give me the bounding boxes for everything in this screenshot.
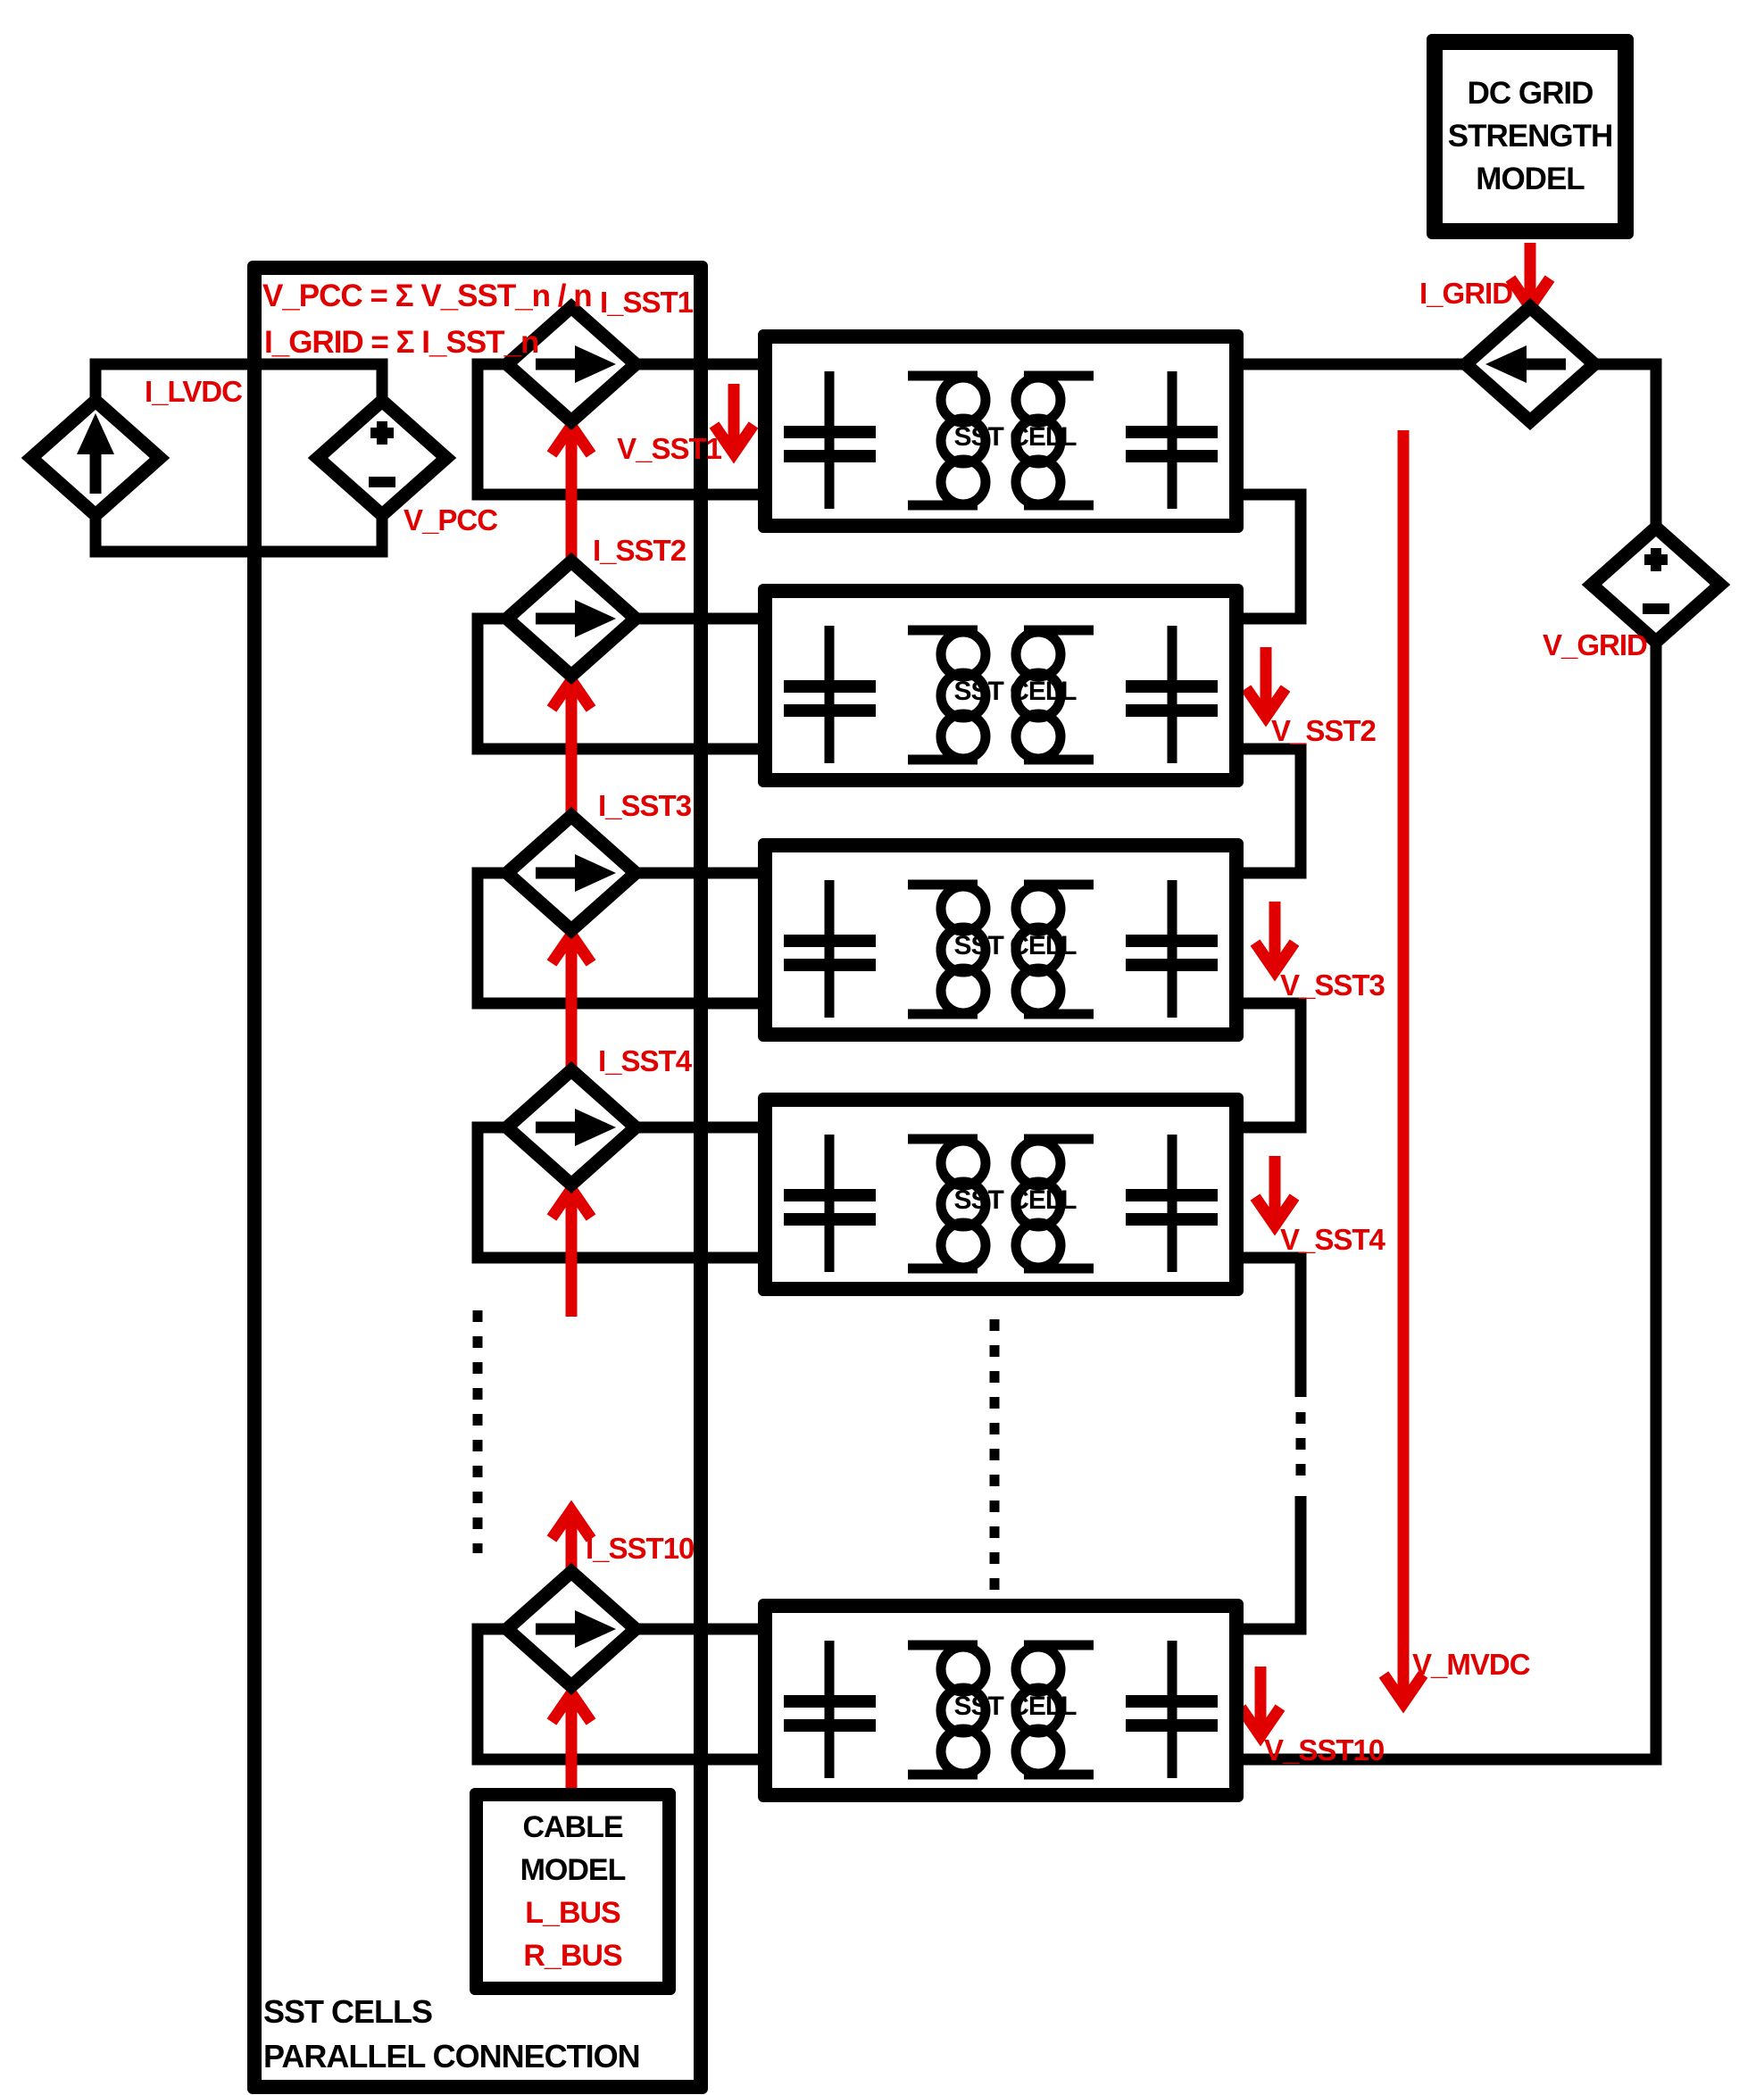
i-grid-source-icon xyxy=(1466,307,1594,421)
dc-grid-model-line1: DC GRID xyxy=(1468,72,1593,115)
formula-v-pcc: V_PCC = Σ V_SST_n / n xyxy=(262,280,592,312)
v-grid-source-icon xyxy=(1592,528,1720,642)
cable-model-line2: MODEL xyxy=(520,1849,626,1891)
v-sst4-label: V_SST4 xyxy=(1280,1225,1385,1254)
i-sst1-label: I_SST1 xyxy=(600,287,693,317)
sst-cell-2-label: SST CELL xyxy=(938,677,1092,707)
cell-internal-components xyxy=(784,371,1218,1778)
i-sst3-label: I_SST3 xyxy=(598,791,691,820)
outer-box-title-line2: PARALLEL CONNECTION xyxy=(263,2041,640,2073)
output-series-chain xyxy=(1244,495,1301,1629)
v-sst2-label: V_SST2 xyxy=(1271,716,1376,745)
i-sst10-label: I_SST10 xyxy=(586,1534,694,1563)
v-sst10-label: V_SST10 xyxy=(1264,1735,1384,1765)
sst-cell-3-label: SST CELL xyxy=(938,931,1092,961)
sst-cell-1-box: SST CELL xyxy=(758,329,1244,533)
i-lvdc-source-icon xyxy=(31,401,160,515)
sst-cell-1-label: SST CELL xyxy=(938,422,1092,453)
i-sst2-label: I_SST2 xyxy=(593,536,686,565)
formula-i-grid: I_GRID = Σ I_SST_n xyxy=(264,327,538,358)
v-sst1-label: V_SST1 xyxy=(612,434,721,463)
cable-model-box: CABLE MODEL L_BUS R_BUS xyxy=(470,1788,676,1995)
sst-cell-2-box: SST CELL xyxy=(758,584,1244,787)
v-pcc-label: V_PCC xyxy=(404,505,497,535)
sst-cell-4-label: SST CELL xyxy=(938,1185,1092,1216)
cable-model-line1: CABLE xyxy=(522,1806,622,1849)
cable-model-r-bus: R_BUS xyxy=(523,1934,621,1977)
sst-cell-10-box: SST CELL xyxy=(758,1599,1244,1802)
sst-cell-10-label: SST CELL xyxy=(938,1692,1092,1722)
i-grid-label: I_GRID xyxy=(1419,279,1512,308)
sst-cell-3-box: SST CELL xyxy=(758,838,1244,1042)
dc-grid-model-line2: STRENGTH xyxy=(1448,115,1613,158)
v-sst3-label: V_SST3 xyxy=(1280,970,1385,1000)
sst-parallel-connection-schematic: DC GRID STRENGTH MODEL CABLE MODEL L_BUS… xyxy=(0,0,1764,2095)
outer-box-title-line1: SST CELLS xyxy=(263,1996,432,2028)
dc-grid-model-line3: MODEL xyxy=(1476,158,1584,201)
v-mvdc-label: V_MVDC xyxy=(1412,1650,1530,1679)
sst-cell-4-box: SST CELL xyxy=(758,1093,1244,1296)
i-lvdc-label: I_LVDC xyxy=(145,377,242,406)
v-grid-label: V_GRID xyxy=(1543,630,1647,660)
i-sst4-label: I_SST4 xyxy=(598,1046,691,1076)
cable-model-l-bus: L_BUS xyxy=(525,1891,620,1934)
dc-grid-strength-model-box: DC GRID STRENGTH MODEL xyxy=(1427,34,1634,239)
